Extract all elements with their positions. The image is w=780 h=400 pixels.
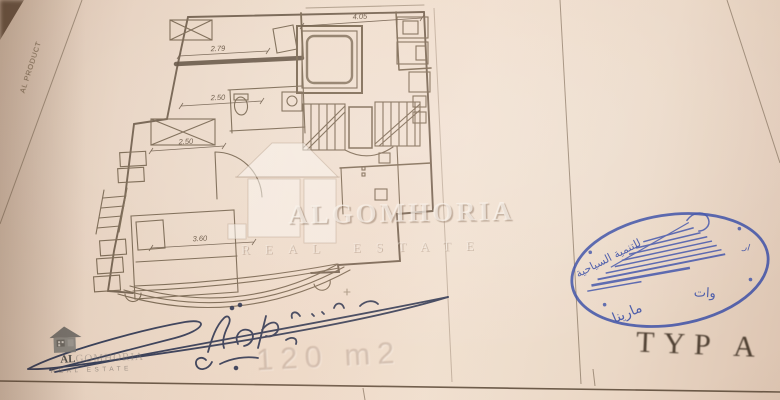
corner-logo-rest: GOMHORIA — [75, 351, 144, 365]
stamp: للتنمية السياحية ار مارينا وات — [564, 200, 777, 340]
corner-logo-name: ALGOMHORIA — [60, 351, 144, 366]
corner-logo-house-icon — [47, 325, 88, 356]
corner-logo-prefix: AL — [60, 353, 76, 366]
stamp-sphinx-icon — [578, 210, 728, 291]
corner-logo: ALGOMHORIA REAL ESTATE — [43, 320, 175, 385]
corner-logo-subtitle: REAL ESTATE — [51, 365, 133, 375]
stamp-bottom-fragment: وات — [693, 285, 716, 301]
stamp-dots — [588, 226, 753, 308]
stamp-bottom-text: مارينا — [610, 300, 645, 327]
floorplan-document-photo: 2.79 2.50 2.50 4.05 3.60 ALGOMHORIA REAL… — [0, 0, 780, 400]
stamp-top-fragment: ار — [741, 242, 751, 254]
type-label: TYP A — [635, 326, 780, 367]
